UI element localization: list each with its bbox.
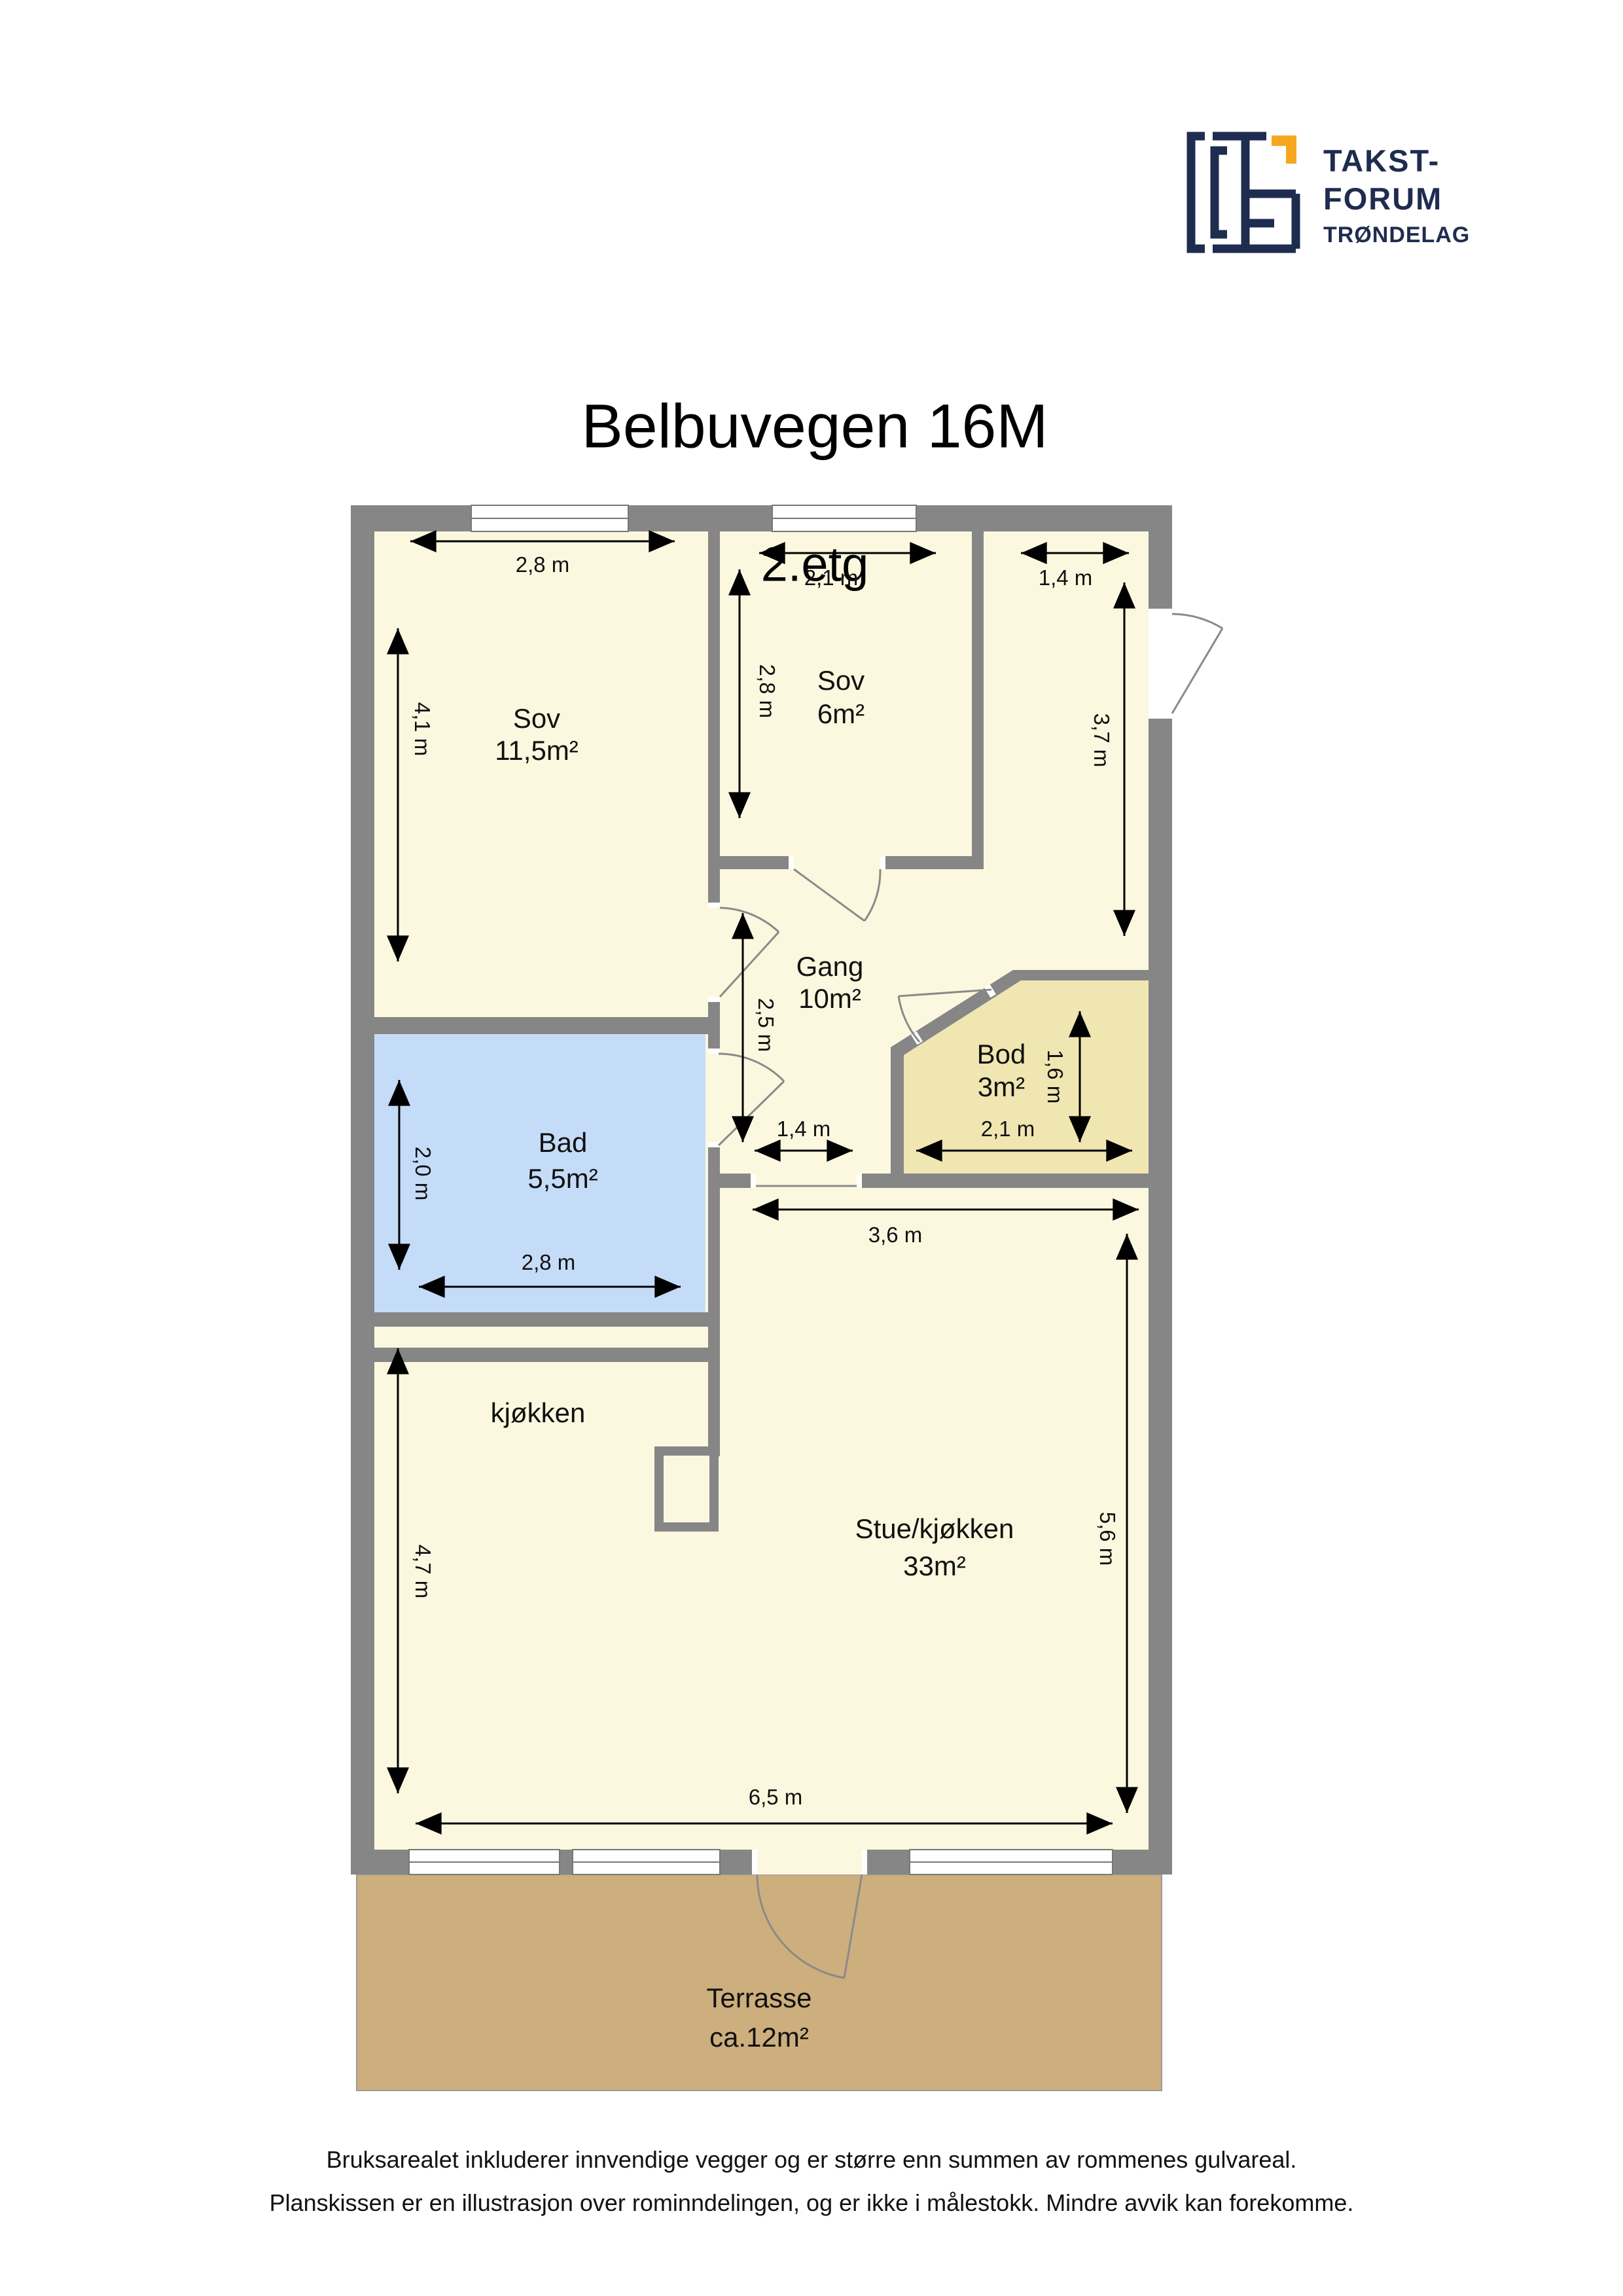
room-label-gang: Gang	[796, 951, 864, 982]
room-label-sov2: Sov	[817, 665, 865, 696]
room-label-kjokken: kjøkken	[491, 1397, 586, 1429]
dim-bod-width: 2,1 m	[981, 1117, 1035, 1141]
wall-bad-bottom-1	[374, 1312, 720, 1327]
window-bottom-right	[910, 1850, 1113, 1874]
terrace-door-opening	[757, 1850, 862, 1874]
floor-plan-drawing	[0, 0, 1623, 2296]
dim-total-width: 6,5 m	[749, 1785, 803, 1810]
footer-note-1: Bruksarealet inkluderer innvendige vegge…	[327, 2146, 1297, 2174]
dim-bod-height: 1,6 m	[1043, 1050, 1067, 1104]
takstforum-logo-icon	[1191, 136, 1296, 249]
dim-sov1-height: 4,1 m	[410, 702, 435, 757]
room-area-sov2: 6m²	[817, 698, 865, 730]
wall-right-lower	[1149, 719, 1172, 1874]
room-label-bod: Bod	[977, 1039, 1026, 1070]
sov2-door-jamb-right	[880, 856, 885, 869]
logo-text-line3: TRØNDELAG	[1323, 223, 1470, 248]
room-area-terrasse: ca.12m²	[709, 2022, 809, 2053]
floor-plan-page: TAKST- FORUM TRØNDELAG Belbuvegen 16M 2.…	[0, 0, 1623, 2296]
bad-door-jamb-top	[708, 1049, 720, 1054]
room-label-terrasse: Terrasse	[706, 1982, 811, 2014]
entry-door	[1172, 614, 1222, 713]
wall-kitchen-stub	[708, 1362, 720, 1456]
room-label-stue: Stue/kjøkken	[855, 1513, 1014, 1545]
dim-bad-height: 2,0 m	[410, 1147, 435, 1201]
wall-bod-left	[891, 1047, 904, 1174]
dim-gang-width: 1,4 m	[777, 1117, 831, 1141]
wall-right-upper	[1149, 505, 1172, 609]
dim-entry-width: 1,4 m	[1039, 565, 1093, 590]
wall-sov2-bottom-left	[720, 856, 794, 869]
wall-stue-top-right	[862, 1174, 1149, 1188]
room-area-gang: 10m²	[798, 983, 861, 1014]
wall-sov2-bottom-right	[880, 856, 984, 869]
logo-text-line2: FORUM	[1323, 181, 1442, 217]
dim-sov1-width: 2,8 m	[516, 552, 570, 577]
dim-stue-height: 5,6 m	[1095, 1512, 1120, 1566]
dim-entry-height: 3,7 m	[1089, 713, 1114, 768]
room-area-bod: 3m²	[978, 1071, 1025, 1103]
sov1-door-jamb-top	[708, 903, 720, 908]
wall-sov2-right	[972, 531, 984, 869]
dim-sov2-width: 2,1 m	[804, 565, 859, 590]
room-area-stue: 33m²	[903, 1551, 966, 1582]
dim-stue-width: 3,6 m	[868, 1223, 923, 1247]
stue-opening-jamb-left	[751, 1174, 756, 1188]
page-title: Belbuvegen 16M	[581, 391, 1048, 463]
stue-opening-jamb-right	[857, 1174, 862, 1188]
room-label-bad: Bad	[539, 1127, 588, 1158]
window-bottom-left-2	[573, 1850, 720, 1874]
dim-bad-width: 2,8 m	[522, 1250, 576, 1275]
sov2-door-jamb-left	[789, 856, 794, 869]
room-area-bad: 5,5m²	[527, 1163, 597, 1194]
wall-bod-top	[1013, 970, 1149, 980]
wall-left	[351, 505, 374, 1874]
window-sov2	[772, 505, 916, 531]
kitchen-peninsula	[659, 1451, 714, 1527]
dim-sov2-height: 2,8 m	[755, 664, 779, 719]
entry-door-opening	[1149, 609, 1172, 719]
takstforum-logo-orange-corner	[1272, 141, 1291, 164]
logo-text-line1: TAKST-	[1323, 143, 1440, 179]
room-label-sov1: Sov	[513, 703, 560, 734]
room-area-sov1: 11,5m²	[495, 735, 579, 766]
dim-kjokken-height: 4,7 m	[410, 1545, 435, 1599]
wall-bad-top	[374, 1017, 720, 1034]
terrace-door-jamb-left	[752, 1850, 757, 1874]
sov1-door-jamb-bottom	[708, 997, 720, 1002]
window-bottom-left-1	[409, 1850, 560, 1874]
wall-bad-bottom-2	[374, 1348, 720, 1362]
footer-note-2: Planskissen er en illustrasjon over romi…	[270, 2189, 1354, 2217]
wall-stue-top-left	[720, 1174, 751, 1188]
window-sov1	[471, 505, 628, 531]
dim-gang-height: 2,5 m	[753, 998, 778, 1052]
wall-sov1-right	[708, 531, 720, 908]
terrace-door-jamb-right	[862, 1850, 867, 1874]
